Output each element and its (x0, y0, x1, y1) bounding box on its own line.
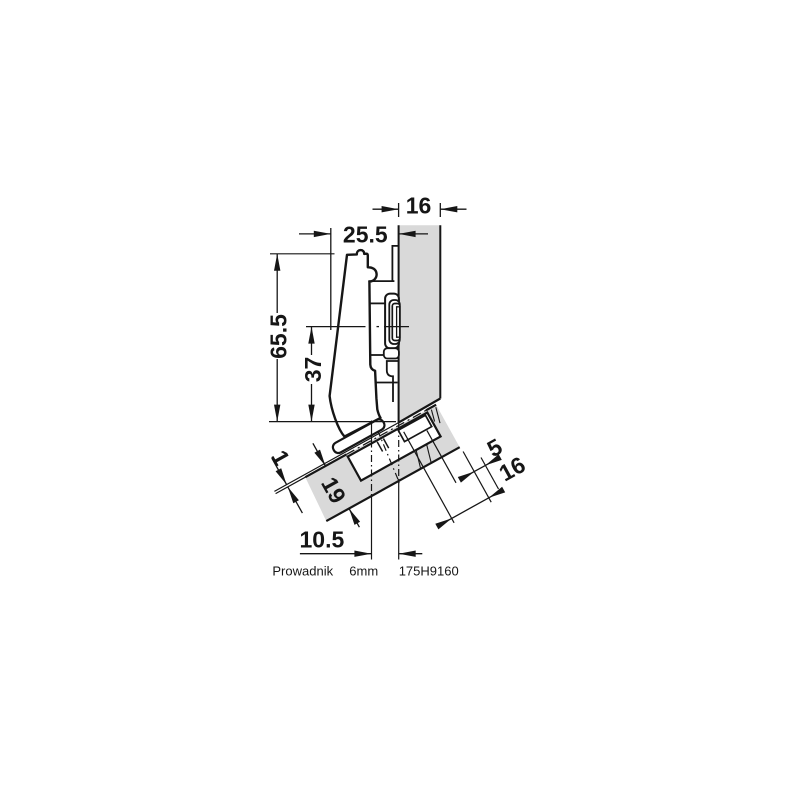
svg-text:6mm: 6mm (349, 564, 378, 579)
svg-text:25.5: 25.5 (343, 222, 388, 248)
svg-text:65.5: 65.5 (266, 314, 292, 359)
svg-text:37: 37 (300, 357, 326, 383)
svg-text:175H9160: 175H9160 (399, 564, 459, 579)
svg-text:16: 16 (406, 193, 432, 219)
svg-text:10.5: 10.5 (300, 527, 345, 553)
svg-text:Prowadnik: Prowadnik (272, 564, 333, 579)
